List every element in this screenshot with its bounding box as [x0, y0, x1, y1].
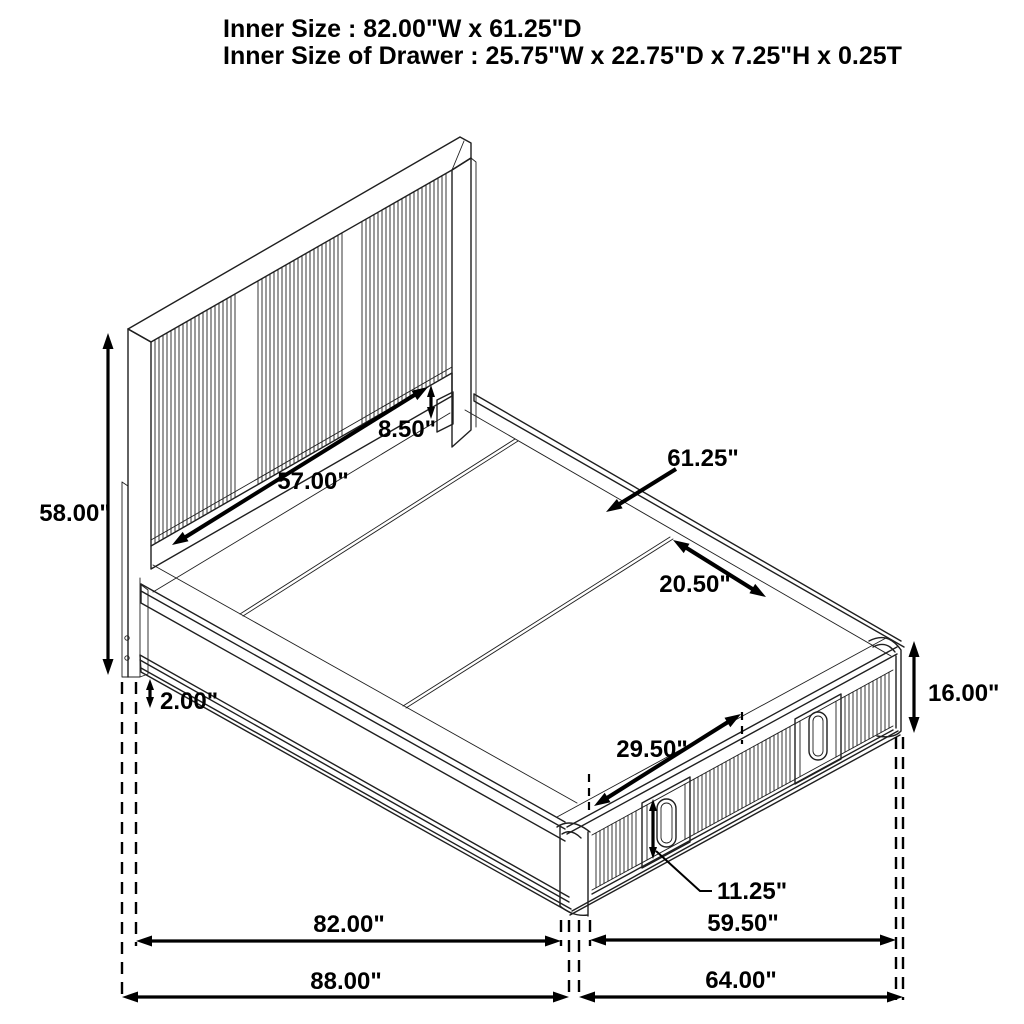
drawer-front-height-leader: [656, 851, 712, 891]
dimension-annotations: [103, 333, 920, 1003]
dim-label-headboard-height: 58.00": [39, 500, 110, 527]
front-corner-post: [557, 823, 590, 916]
dim-arrow-inner-depth: [613, 469, 676, 508]
headboard-leg: [122, 482, 148, 677]
headboard-right-post-side: [471, 158, 476, 427]
storage-drawers: [567, 647, 900, 915]
dim-label-deck-panel-width: 20.50": [659, 571, 730, 598]
headboard-left-stile: [128, 329, 151, 546]
dim-label-footboard-height: 16.00": [928, 680, 999, 707]
bed-dimension-diagram-page: Inner Size : 82.00"W x 61.25"D Inner Siz…: [0, 0, 1024, 1024]
bed-dimension-diagram: Inner Size : 82.00"W x 61.25"D Inner Siz…: [0, 0, 1024, 1024]
right-drawer-handle-inner: [813, 716, 823, 756]
page-title-line1: Inner Size : 82.00"W x 61.25"D: [223, 15, 582, 43]
left-drawer-handle: [657, 799, 676, 847]
dim-label-drawer-width: 29.50": [616, 736, 687, 763]
headboard-right-post: [452, 158, 471, 447]
dim-label-overall-width: 88.00": [310, 968, 381, 995]
headboard-support-post: [437, 392, 453, 432]
dim-label-overall-depth: 64.00": [705, 967, 776, 994]
front-rail-top-face: [153, 565, 577, 803]
dim-label-drawer-front-height: 11.25": [717, 878, 787, 905]
headboard: [122, 137, 476, 677]
back-rail: [474, 394, 904, 647]
dim-label-drawer-section-width: 59.50": [707, 910, 778, 937]
right-drawer-handle: [809, 712, 827, 760]
dim-label-inner-depth: 61.25": [667, 445, 738, 472]
bed-platform: [140, 394, 904, 913]
left-drawer-handle-panel: [642, 777, 690, 868]
headboard-panel-bottom-edge: [151, 367, 452, 540]
drawer-front-ribs: [596, 672, 889, 888]
dim-label-floor-clearance: 2.00": [160, 688, 218, 715]
left-drawer-handle-inner: [661, 803, 672, 843]
dim-label-inner-width: 82.00": [313, 911, 384, 938]
dim-label-headboard-panel-width: 57.00": [277, 468, 348, 495]
page-title-line2: Inner Size of Drawer : 25.75"W x 22.75"D…: [223, 42, 902, 70]
headboard-top-rail: [128, 137, 471, 342]
dim-label-headboard-gap: 8.50": [378, 416, 436, 443]
